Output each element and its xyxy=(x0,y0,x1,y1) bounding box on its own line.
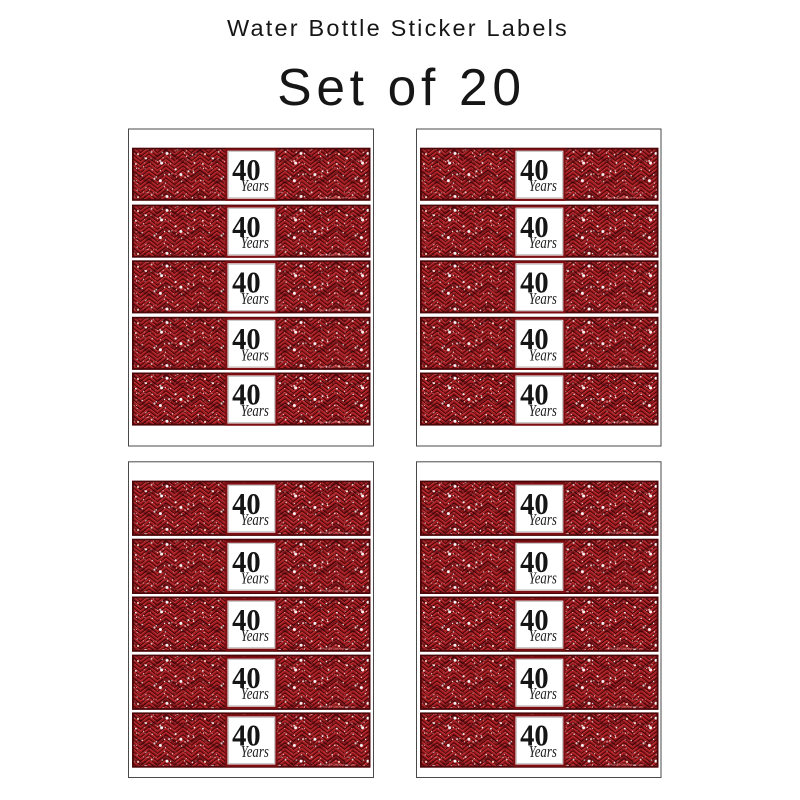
svg-text:Set of 20: Set of 20 xyxy=(277,58,525,116)
svg-text:Water Bottle Sticker Labels: Water Bottle Sticker Labels xyxy=(227,15,569,41)
